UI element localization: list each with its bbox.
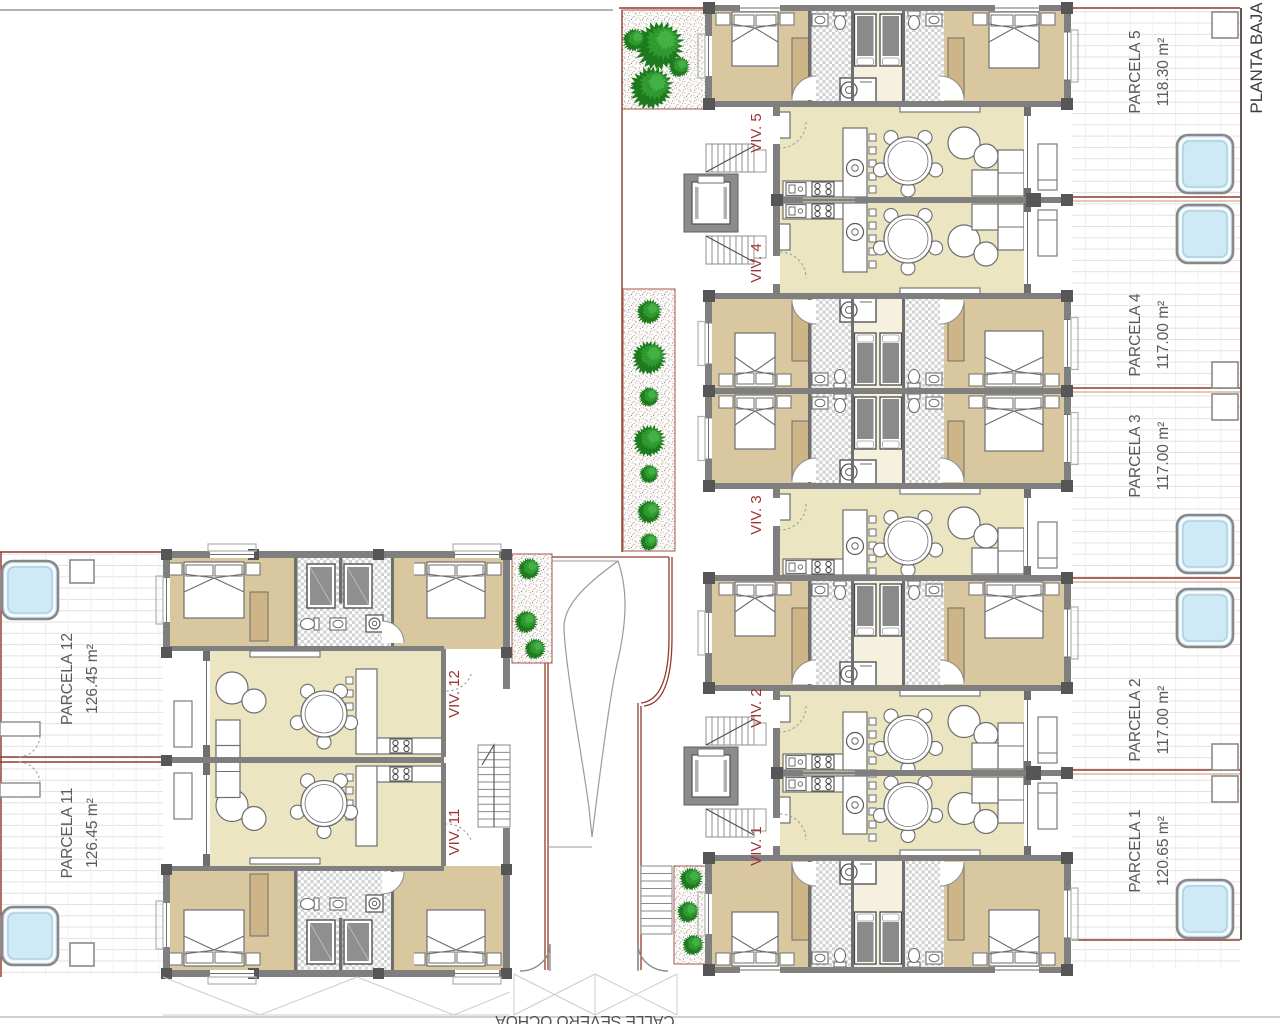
svg-text:117.00 m²: 117.00 m² [1155,301,1172,370]
svg-text:PARCELA 5: PARCELA 5 [1127,30,1144,113]
svg-text:PLANTA BAJA: PLANTA BAJA [1247,2,1266,114]
svg-text:PARCELA 4: PARCELA 4 [1127,293,1144,377]
svg-text:PARCELA 11: PARCELA 11 [59,788,76,879]
svg-text:PARCELA 2: PARCELA 2 [1127,678,1144,761]
svg-text:VIV. 5: VIV. 5 [748,113,765,152]
svg-text:PARCELA 1: PARCELA 1 [1127,809,1144,892]
svg-text:126.45 m²: 126.45 m² [84,644,101,714]
svg-text:117.00 m²: 117.00 m² [1155,686,1172,755]
svg-text:VIV. 3: VIV. 3 [748,495,765,534]
svg-text:PARCELA 12: PARCELA 12 [59,633,76,725]
svg-text:VIV. 11: VIV. 11 [446,809,463,856]
svg-text:118.30 m²: 118.30 m² [1155,38,1172,107]
svg-text:126.45 m²: 126.45 m² [84,798,101,868]
svg-text:VIV. 2: VIV. 2 [748,688,765,727]
svg-text:PARCELA 3: PARCELA 3 [1127,414,1144,497]
svg-text:VIV. 4: VIV. 4 [748,243,765,282]
svg-text:VIV. 12: VIV. 12 [446,670,463,718]
svg-text:120.65 m²: 120.65 m² [1155,816,1172,886]
svg-text:VIV. 1: VIV. 1 [748,826,765,865]
svg-text:CALLE SEVERO OCHOA: CALLE SEVERO OCHOA [495,1012,675,1024]
svg-text:117.00 m²: 117.00 m² [1155,422,1172,491]
